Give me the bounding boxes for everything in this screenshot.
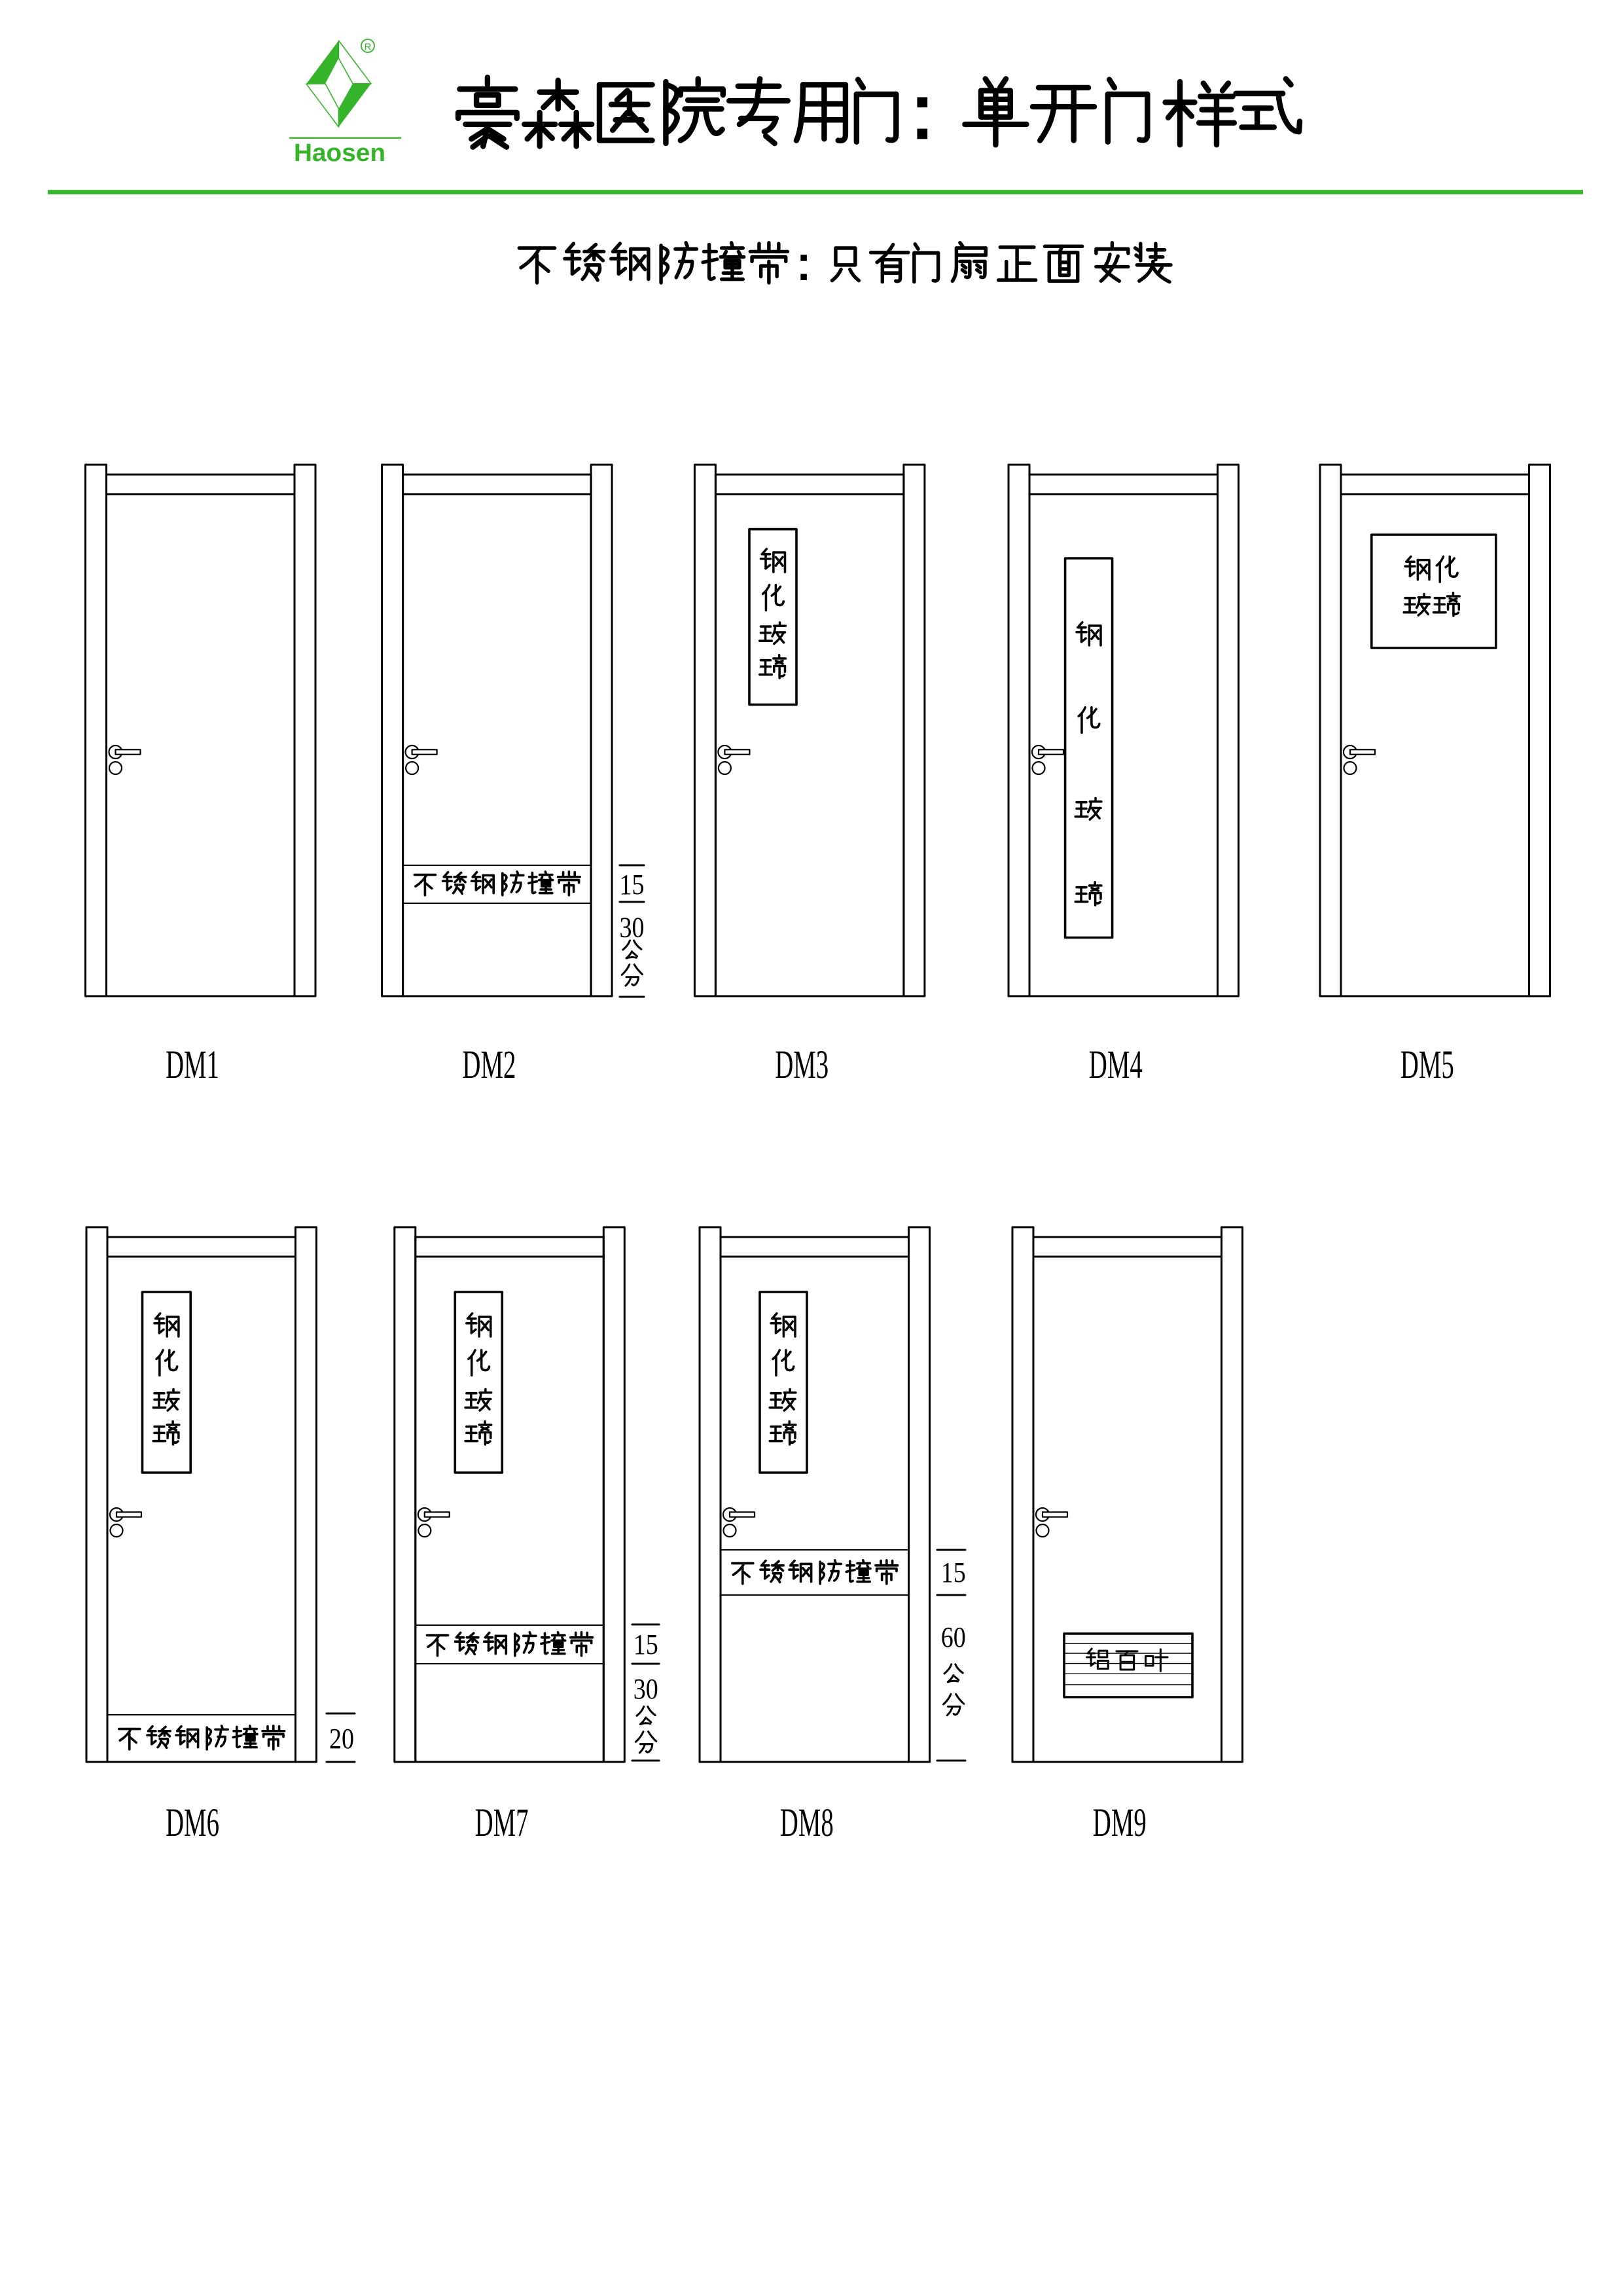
svg-text:R: R (365, 42, 372, 53)
svg-text:15: 15 (941, 1556, 966, 1588)
svg-text:30: 30 (633, 1673, 658, 1705)
svg-text:DM9: DM9 (1093, 1801, 1147, 1845)
svg-text:DM7: DM7 (475, 1801, 529, 1845)
svg-text:30: 30 (620, 912, 645, 944)
svg-text:DM4: DM4 (1089, 1043, 1143, 1087)
svg-text:Haosen: Haosen (294, 139, 385, 167)
svg-text:DM5: DM5 (1400, 1043, 1454, 1087)
svg-text:DM2: DM2 (462, 1043, 516, 1087)
svg-text:DM1: DM1 (166, 1043, 219, 1087)
svg-text:20: 20 (329, 1723, 354, 1755)
svg-text:15: 15 (633, 1628, 658, 1660)
svg-text:60: 60 (941, 1621, 966, 1653)
svg-text:15: 15 (620, 869, 645, 901)
svg-text:DM6: DM6 (166, 1801, 219, 1845)
svg-text:DM8: DM8 (780, 1801, 834, 1845)
svg-text:DM3: DM3 (775, 1043, 829, 1087)
